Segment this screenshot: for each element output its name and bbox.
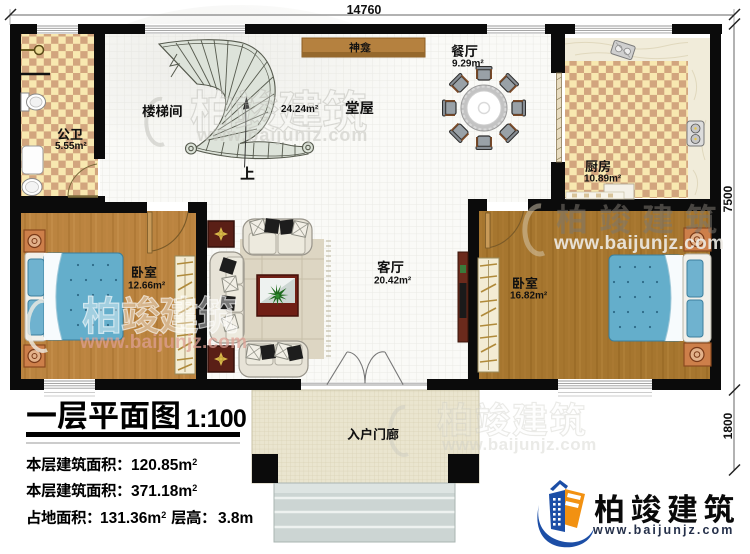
svg-text:131.36m2: 131.36m2 <box>100 510 166 527</box>
svg-text:120.85m2: 120.85m2 <box>131 457 197 474</box>
svg-text:20.42m²: 20.42m² <box>374 276 412 287</box>
svg-text:1800: 1800 <box>721 412 735 439</box>
svg-text:www.baijunjz.com: www.baijunjz.com <box>441 435 597 454</box>
svg-text:9.29m²: 9.29m² <box>452 59 484 70</box>
svg-text:www.baijunjz.com: www.baijunjz.com <box>553 233 724 254</box>
svg-text:7500: 7500 <box>721 185 735 212</box>
svg-text:www.baijunjz.com: www.baijunjz.com <box>592 523 734 537</box>
svg-text:24.24m²: 24.24m² <box>281 104 319 115</box>
svg-text:10.89m²: 10.89m² <box>584 174 622 185</box>
svg-text:14760: 14760 <box>347 3 382 17</box>
svg-text:www.baijunjz.com: www.baijunjz.com <box>79 332 247 353</box>
svg-text:16.82m²: 16.82m² <box>510 291 548 302</box>
svg-text:5.55m²: 5.55m² <box>55 141 87 152</box>
svg-text:1:100: 1:100 <box>186 405 246 433</box>
svg-text:371.18m2: 371.18m2 <box>131 483 197 500</box>
svg-text:12.66m²: 12.66m² <box>128 281 166 292</box>
svg-text:3.8m: 3.8m <box>218 510 253 527</box>
svg-text:www.baijunjz.com: www.baijunjz.com <box>196 125 368 145</box>
